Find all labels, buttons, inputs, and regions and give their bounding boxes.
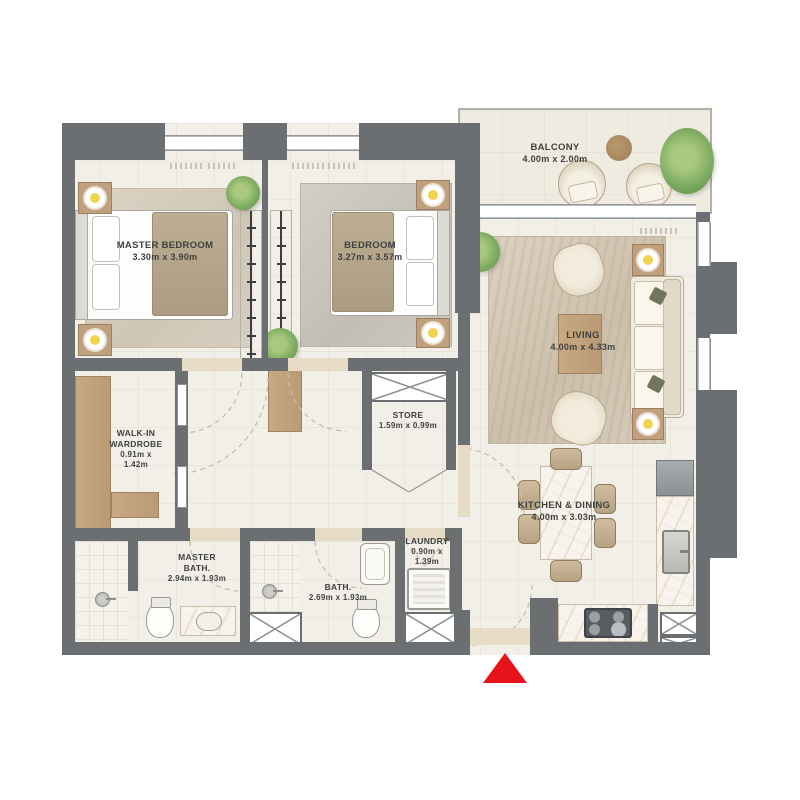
window — [697, 338, 711, 390]
master-bed-pillow — [92, 264, 120, 310]
wall-segment — [458, 313, 470, 445]
table-lamp-icon — [423, 323, 443, 343]
balcony-label: BALCONY 4.00m x 2.00m — [505, 142, 605, 166]
room-name: MASTER BEDROOM — [117, 240, 214, 252]
hall-cabinet — [268, 370, 302, 432]
room-name: BALCONY — [530, 142, 579, 154]
sofa — [630, 276, 684, 418]
bedroom-nightstand — [416, 318, 450, 348]
wall-segment — [62, 642, 470, 655]
shower-area — [250, 541, 300, 621]
wall-segment — [268, 358, 288, 371]
entrance-threshold — [470, 628, 530, 645]
room-dims: 4.00m x 4.33m — [551, 342, 616, 354]
structural-column — [710, 390, 737, 558]
wall-segment — [359, 123, 460, 160]
room-name: STORE — [393, 410, 424, 421]
window — [480, 204, 696, 219]
cabinet-box — [404, 612, 458, 646]
room-dims: 3.30m x 3.90m — [133, 252, 198, 264]
wall-segment — [242, 358, 268, 371]
door-threshold — [182, 358, 242, 371]
window — [287, 135, 359, 151]
closet-cabinet — [370, 372, 450, 402]
room-name: BEDROOM — [344, 240, 396, 252]
master-bath-label: MASTER BATH. 2.94m x 1.93m — [156, 552, 238, 584]
side-table — [632, 408, 664, 440]
wall-segment — [454, 610, 470, 642]
room-name: BATH. — [325, 582, 352, 593]
master-bedroom-label: MASTER BEDROOM 3.30m x 3.90m — [85, 240, 245, 264]
bedroom-label: BEDROOM 3.27m x 3.57m — [305, 240, 435, 264]
curtain-strip — [640, 228, 680, 234]
wall-segment — [696, 212, 710, 655]
room-name: WALK-IN WARDROBE — [104, 428, 168, 450]
wall-segment — [348, 358, 458, 371]
curtain-strip — [170, 163, 204, 169]
table-lamp-icon — [85, 330, 105, 350]
wall-segment — [262, 160, 268, 360]
wall-segment — [62, 358, 182, 371]
master-nightstand — [78, 324, 112, 356]
structural-column — [710, 262, 737, 334]
window — [165, 135, 243, 151]
room-dims: 3.27m x 3.57m — [338, 252, 403, 264]
store-label: STORE 1.59m x 0.99m — [362, 410, 454, 431]
toilet — [146, 602, 174, 638]
room-name: LIVING — [566, 330, 599, 342]
bedroom-nightstand — [416, 180, 450, 210]
room-name: LAUNDRY — [405, 536, 448, 547]
bedroom-bed-headboard — [437, 210, 450, 316]
toilet — [352, 604, 380, 638]
dining-chair — [550, 448, 582, 470]
wall-segment — [240, 541, 250, 642]
kitchen-sink — [662, 530, 690, 574]
balcony-table — [606, 135, 632, 161]
room-name: KITCHEN & DINING — [518, 500, 610, 512]
sliding-door — [177, 384, 187, 426]
wall-segment — [530, 642, 710, 655]
side-table — [632, 244, 664, 276]
wall-segment — [240, 528, 315, 541]
fridge — [656, 460, 694, 496]
curtain-strip — [328, 163, 356, 169]
cabinet-box — [660, 612, 698, 636]
wall-segment — [648, 604, 658, 642]
bedroom-bed-pillow — [406, 262, 434, 306]
balcony-chair — [558, 160, 606, 208]
wall-segment — [62, 528, 190, 541]
washing-machine — [407, 568, 451, 610]
wall-segment — [455, 123, 480, 313]
room-dims: 1.59m x 0.99m — [379, 421, 437, 431]
floor-plan: MASTER BEDROOM 3.30m x 3.90m BEDROOM 3.2… — [0, 0, 800, 800]
dining-chair — [550, 560, 582, 582]
room-dims: 0.91m x 1.42m — [113, 450, 159, 471]
door-threshold — [315, 528, 362, 541]
table-lamp-icon — [85, 188, 105, 208]
room-dims: 4.00m x 2.00m — [523, 154, 588, 166]
sofa-backrest — [663, 279, 681, 415]
door-threshold — [458, 445, 470, 517]
plant-icon — [660, 128, 714, 194]
shower-head-icon — [95, 592, 110, 607]
room-dims: 2.94m x 1.93m — [168, 574, 226, 584]
bathtub — [360, 543, 390, 585]
kitchen-dining-label: KITCHEN & DINING 4.00m x 3.03m — [502, 500, 626, 524]
bath-label: BATH. 2.69m x 1.93m — [294, 582, 382, 603]
window — [697, 222, 711, 266]
stove-icon — [584, 608, 632, 638]
sliding-door — [177, 466, 187, 508]
wardrobe-cabinet — [111, 492, 159, 518]
table-lamp-icon — [638, 414, 658, 434]
shower-head-icon — [262, 584, 277, 599]
laundry-label: LAUNDRY 0.90m x 1.39m — [398, 536, 456, 568]
room-dims: 0.90m x 1.39m — [404, 547, 450, 568]
room-name: MASTER BATH. — [171, 552, 223, 574]
curtain-strip — [292, 163, 324, 169]
table-lamp-icon — [423, 185, 443, 205]
wall-segment — [62, 123, 75, 655]
master-nightstand — [78, 182, 112, 214]
wardrobe-rail-icon — [240, 210, 262, 360]
cabinet-box — [248, 612, 302, 646]
wall-segment — [243, 123, 287, 160]
plant-icon — [226, 176, 260, 210]
walk-in-wardrobe-label: WALK-IN WARDROBE 0.91m x 1.42m — [100, 428, 172, 471]
door-threshold — [288, 358, 348, 371]
living-label: LIVING 4.00m x 4.33m — [528, 330, 638, 354]
wall-segment — [128, 541, 138, 591]
sofa-cushion — [634, 326, 664, 370]
entrance-arrow-icon — [483, 653, 527, 683]
vanity-sink — [196, 612, 222, 631]
door-threshold — [190, 528, 240, 541]
room-dims: 2.69m x 1.93m — [309, 593, 367, 603]
curtain-strip — [208, 163, 238, 169]
room-dims: 4.00m x 3.03m — [532, 512, 597, 524]
master-bed-headboard — [75, 210, 88, 320]
table-lamp-icon — [638, 250, 658, 270]
wall-segment — [62, 123, 165, 160]
